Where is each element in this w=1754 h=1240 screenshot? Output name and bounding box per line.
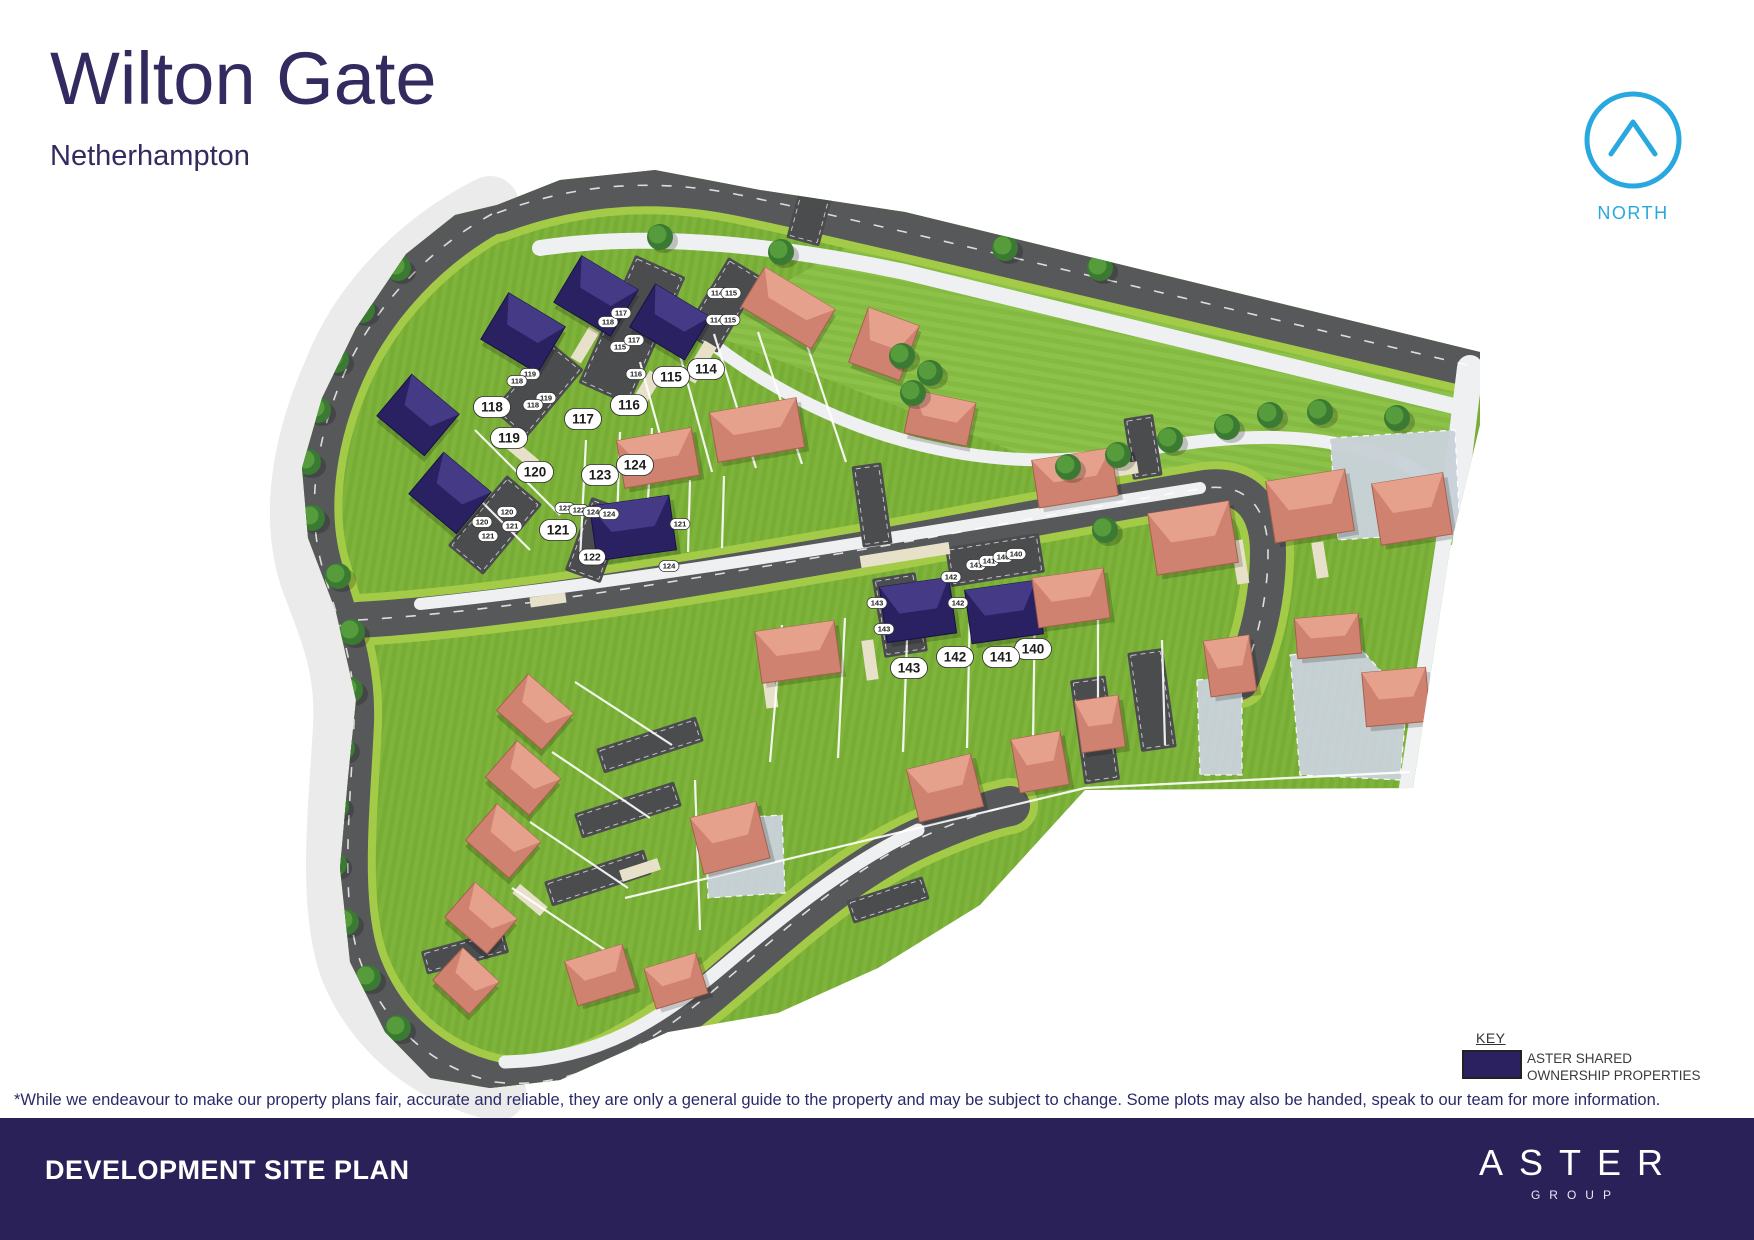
svg-text:140: 140 [1022, 642, 1045, 657]
plot-number-label: 140 [1015, 639, 1052, 660]
key-shared-ownership-swatch [1462, 1050, 1522, 1079]
svg-text:142: 142 [944, 650, 967, 665]
svg-text:117: 117 [572, 412, 594, 427]
svg-text:142: 142 [952, 599, 965, 608]
svg-text:116: 116 [630, 370, 642, 379]
parking-bay-label: 120 [472, 517, 492, 528]
svg-text:115: 115 [725, 289, 737, 298]
parking-bay-label: 121 [478, 531, 498, 542]
plot-number-label: 121 [540, 520, 577, 541]
svg-text:114: 114 [695, 362, 717, 377]
parking-bay-label: 117 [611, 308, 631, 319]
parking-bay-label: 121 [502, 521, 522, 532]
svg-text:143: 143 [898, 661, 921, 676]
north-indicator: NORTH [1568, 88, 1698, 224]
parking-bay-label: 142 [941, 572, 961, 583]
key-shared-ownership-label: ASTER SHARED OWNERSHIP PROPERTIES [1527, 1051, 1701, 1085]
plot-number-label: 114 [688, 359, 725, 380]
svg-text:118: 118 [481, 400, 503, 415]
plot-number-label: 122 [579, 549, 606, 565]
svg-text:124: 124 [587, 508, 600, 517]
house-shared-ownership [879, 577, 961, 648]
parking-bay-label: 124 [659, 561, 679, 572]
parking-bay-label: 117 [624, 335, 644, 346]
svg-text:141: 141 [990, 650, 1013, 665]
svg-text:124: 124 [624, 458, 647, 473]
house [1032, 568, 1115, 633]
svg-text:143: 143 [878, 625, 891, 634]
plot-number-label: 120 [517, 462, 554, 483]
plot-number-label: 117 [565, 409, 602, 430]
brand-sub: GROUP [1463, 1188, 1679, 1202]
parking-bay-label: 143 [867, 598, 887, 609]
header: Wilton Gate Netherhampton [50, 40, 437, 173]
parking-bay-label: 116 [626, 369, 646, 380]
north-label: NORTH [1568, 203, 1698, 224]
svg-text:142: 142 [945, 573, 958, 582]
house [1075, 695, 1130, 758]
svg-text:124: 124 [603, 510, 616, 519]
parking-bay-label: 115 [721, 288, 741, 299]
parking-bay-label: 115 [720, 315, 740, 326]
page-title: Wilton Gate [50, 40, 437, 118]
plot-number-label: 143 [891, 658, 928, 679]
svg-text:121: 121 [482, 532, 495, 541]
plot-number-label: 141 [983, 647, 1020, 668]
house [1148, 500, 1243, 580]
page-subtitle: Netherhampton [50, 140, 437, 173]
parking-bay-label: 118 [507, 376, 527, 387]
parking-bay-label: 124 [599, 509, 619, 520]
svg-text:121: 121 [547, 523, 570, 538]
plot-number-label: 118 [474, 397, 511, 418]
parking-bay-label: 142 [948, 598, 968, 609]
svg-text:121: 121 [506, 522, 519, 531]
svg-text:121: 121 [674, 520, 687, 529]
svg-text:143: 143 [871, 599, 884, 608]
svg-text:118: 118 [602, 318, 614, 327]
house [1011, 730, 1074, 797]
plot-number-label: 142 [937, 647, 974, 668]
plot-number-label: 115 [653, 367, 690, 388]
house [755, 620, 846, 688]
plot-number-label: 119 [491, 428, 528, 449]
svg-text:120: 120 [476, 518, 489, 527]
svg-text:123: 123 [589, 468, 612, 483]
north-compass-icon [1581, 88, 1685, 192]
svg-text:117: 117 [615, 309, 627, 318]
house [1294, 613, 1366, 664]
svg-text:115: 115 [614, 343, 626, 352]
footer-bar: DEVELOPMENT SITE PLAN ASTER GROUP [0, 1118, 1754, 1240]
svg-text:118: 118 [511, 377, 523, 386]
plot-number-label: 123 [582, 465, 619, 486]
disclaimer-text: *While we endeavour to make our property… [14, 1091, 1734, 1110]
aster-group-logo: ASTER GROUP [1463, 1142, 1679, 1202]
svg-text:117: 117 [628, 336, 640, 345]
key-heading: KEY [1476, 1030, 1732, 1046]
map-key: KEY ASTER SHARED OWNERSHIP PROPERTIES [1462, 1030, 1732, 1085]
parking-bay-label: 120 [497, 507, 517, 518]
svg-text:120: 120 [501, 508, 514, 517]
svg-text:119: 119 [498, 431, 520, 446]
svg-text:122: 122 [583, 552, 601, 564]
parking-bay-label: 121 [670, 519, 690, 530]
svg-text:120: 120 [524, 465, 547, 480]
svg-text:118: 118 [527, 401, 539, 410]
svg-text:115: 115 [724, 316, 736, 325]
svg-text:116: 116 [618, 398, 640, 413]
house [1372, 472, 1458, 550]
svg-text:140: 140 [1010, 550, 1023, 559]
site-plan-page: 1181171151171161191181191181201211201211… [0, 0, 1754, 1240]
footer-title: DEVELOPMENT SITE PLAN [45, 1155, 410, 1186]
svg-text:115: 115 [660, 370, 682, 385]
house [1266, 468, 1359, 547]
svg-text:124: 124 [663, 562, 676, 571]
parking-bay-label: 143 [874, 624, 894, 635]
house [1203, 635, 1261, 702]
plot-number-label: 124 [617, 455, 654, 476]
parking-bay-label: 140 [1006, 549, 1026, 560]
parking-bay-label: 118 [523, 400, 543, 411]
brand-name: ASTER [1463, 1142, 1679, 1184]
plot-number-label: 116 [611, 395, 648, 416]
house [1362, 667, 1435, 732]
